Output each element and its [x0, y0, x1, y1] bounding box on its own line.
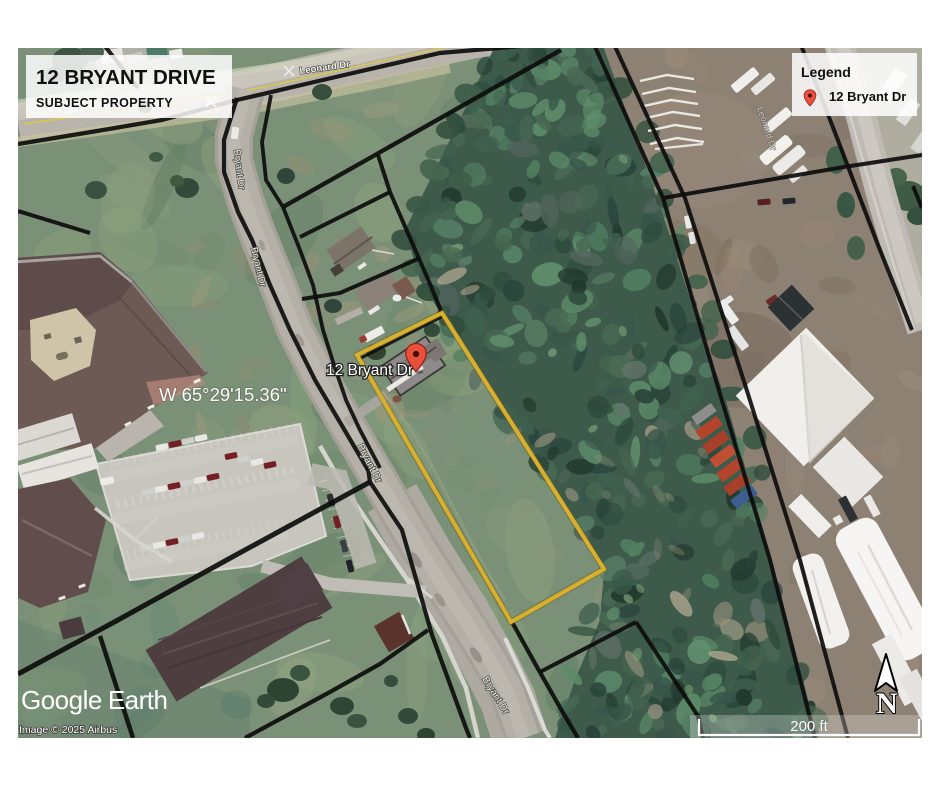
- svg-text:12 Bryant Dr: 12 Bryant Dr: [829, 89, 906, 104]
- svg-text:200 ft: 200 ft: [790, 718, 828, 735]
- svg-text:W 65°29'15.36": W 65°29'15.36": [159, 384, 287, 405]
- svg-text:Image © 2025 Airbus: Image © 2025 Airbus: [19, 724, 117, 736]
- svg-text:GoogleEarth: GoogleEarth: [21, 685, 168, 715]
- svg-text:N: N: [876, 687, 898, 720]
- svg-text:12 Bryant Dr: 12 Bryant Dr: [326, 362, 413, 379]
- svg-text:SUBJECT PROPERTY: SUBJECT PROPERTY: [36, 96, 173, 110]
- svg-text:12 BRYANT DRIVE: 12 BRYANT DRIVE: [36, 66, 216, 89]
- svg-text:Legend: Legend: [801, 64, 851, 80]
